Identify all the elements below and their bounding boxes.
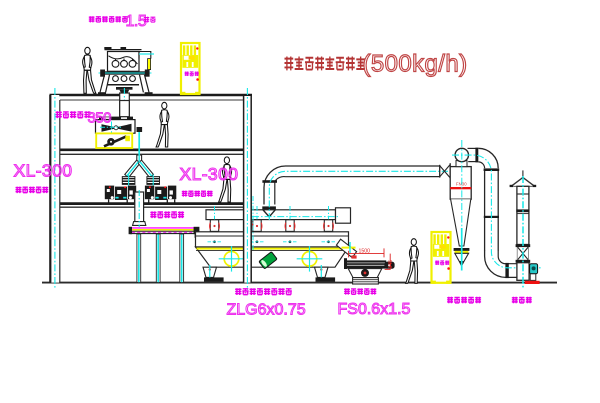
svg-text:350: 350 (88, 110, 112, 127)
svg-text:FS0.6x1.5: FS0.6x1.5 (338, 301, 411, 318)
svg-text:1.5: 1.5 (126, 13, 147, 30)
svg-text:1500: 1500 (359, 249, 371, 255)
svg-text:(500kg/h): (500kg/h) (363, 51, 468, 78)
svg-text:345: 345 (388, 260, 394, 269)
svg-text:XL-300: XL-300 (14, 160, 73, 180)
svg-text:XL-300: XL-300 (180, 164, 239, 184)
svg-text:ZLG6x0.75: ZLG6x0.75 (227, 302, 306, 319)
